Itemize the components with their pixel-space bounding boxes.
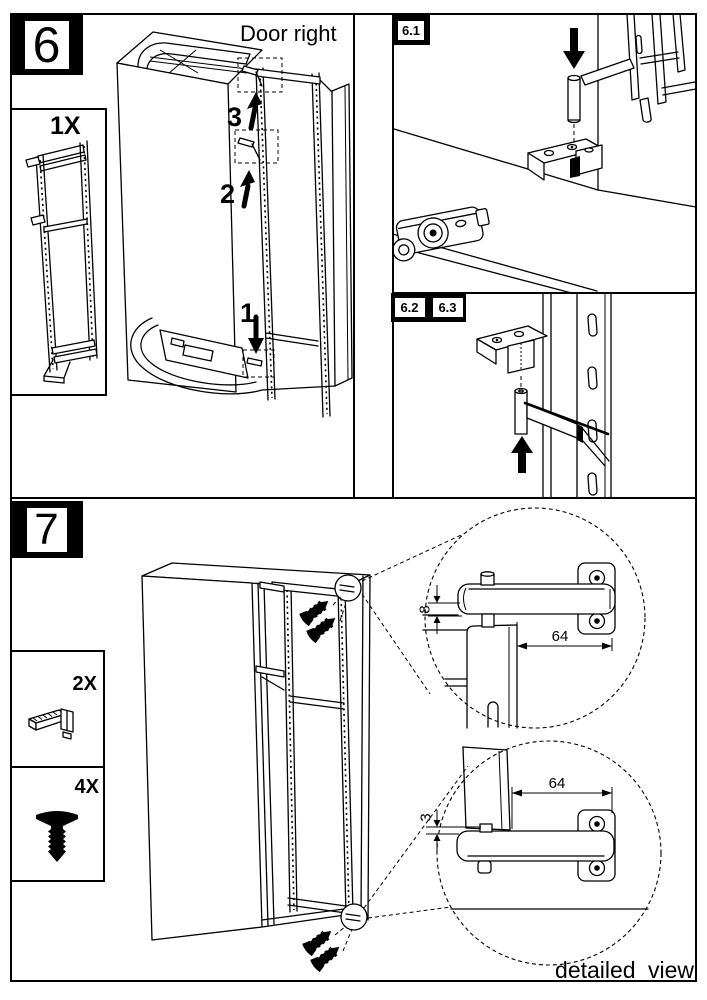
step6-number: 6 bbox=[25, 21, 69, 69]
detail-62-63-badge: 6.2 6.3 bbox=[391, 293, 466, 322]
arrow-up-icon bbox=[511, 436, 533, 473]
step7-illustration bbox=[11, 499, 696, 982]
step7-number: 7 bbox=[27, 508, 67, 552]
part-1x-qty: 1X bbox=[50, 112, 81, 141]
cabinet-drawing bbox=[117, 32, 352, 417]
step6-panel-divider bbox=[353, 13, 355, 498]
door-frame-profile bbox=[627, 14, 696, 122]
detail-panel-divider bbox=[392, 13, 394, 498]
hanger-bracket bbox=[477, 326, 547, 373]
dim-bottom-gap: 3 bbox=[418, 810, 435, 826]
callout-2: 2 bbox=[220, 179, 235, 210]
step7-badge: 7 bbox=[10, 501, 83, 558]
dim-top-offset: 64 bbox=[545, 628, 575, 645]
frame-part-icon bbox=[26, 141, 97, 383]
step6-step7-divider bbox=[10, 497, 697, 499]
detail-62-label: 6.2 bbox=[395, 298, 425, 317]
zoom-circle-top bbox=[335, 575, 361, 601]
roller-unit bbox=[393, 204, 493, 262]
wardrobe-drawing bbox=[142, 563, 370, 940]
floor-bracket bbox=[528, 139, 602, 180]
part-2x-qty: 2X bbox=[60, 673, 97, 696]
detail-6-2-illustration bbox=[393, 294, 696, 497]
arrow-down-icon bbox=[563, 28, 585, 69]
door-side-label: Door right bbox=[240, 21, 337, 47]
detail-6-1-illustration bbox=[393, 14, 696, 292]
step6-cabinet-illustration bbox=[10, 13, 354, 498]
zoom-circle-bottom bbox=[341, 904, 367, 930]
detail-view-top bbox=[423, 508, 645, 728]
bracket-part-icon bbox=[25, 703, 80, 745]
dim-bottom-offset: 64 bbox=[542, 775, 572, 792]
footer-detailed-view: detailed view bbox=[540, 957, 694, 984]
callout-3: 3 bbox=[227, 102, 242, 133]
wall-rail-drawing bbox=[543, 294, 611, 497]
part-4x-qty: 4X bbox=[62, 776, 99, 799]
step6-badge: 6 bbox=[10, 15, 83, 75]
detail-61-badge: 6.1 bbox=[392, 15, 430, 45]
dim-top-gap: 8 bbox=[417, 602, 434, 618]
detail-61-label: 6.1 bbox=[398, 21, 424, 40]
callout-box-2 bbox=[235, 130, 278, 163]
door-pin bbox=[568, 59, 634, 123]
instruction-sheet: 6 7 6.1 6.2 6.3 Door right 1X 3 2 1 2X 4… bbox=[0, 0, 707, 1000]
callout-1: 1 bbox=[240, 298, 255, 329]
detail-63-label: 6.3 bbox=[433, 298, 463, 317]
screw-part-icon bbox=[33, 810, 81, 865]
